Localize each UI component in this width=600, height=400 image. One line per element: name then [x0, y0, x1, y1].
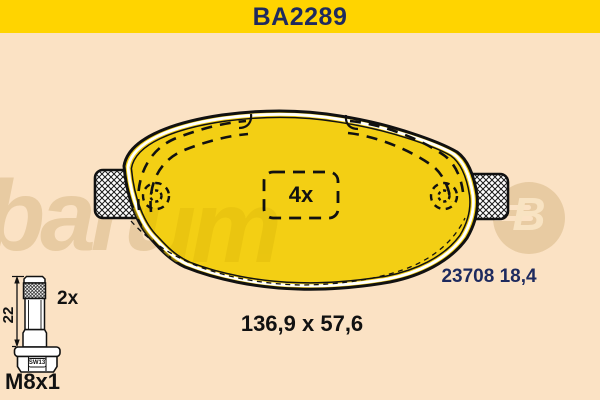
bolt-length-label: 22: [0, 302, 18, 328]
pad-ref-number-label: 23708 18,4: [429, 266, 549, 288]
pad-dimensions-label: 136,9 x 57,6: [202, 311, 402, 337]
bolt-tip: [24, 277, 45, 284]
bolt-thread: [24, 283, 46, 299]
bolt-neck: [23, 330, 47, 348]
bolt-shank: [25, 299, 45, 330]
bolt-wrench-label: SW13: [28, 358, 46, 367]
pad-quantity-label: 4x: [264, 172, 338, 218]
bolt-thread-label: M8x1: [5, 369, 60, 395]
bolt-flange: [15, 347, 61, 357]
part-number-title: BA2289: [0, 3, 600, 32]
bolt-quantity-label: 2x: [57, 288, 78, 310]
brake-pad-outline: barum: [0, 111, 477, 289]
